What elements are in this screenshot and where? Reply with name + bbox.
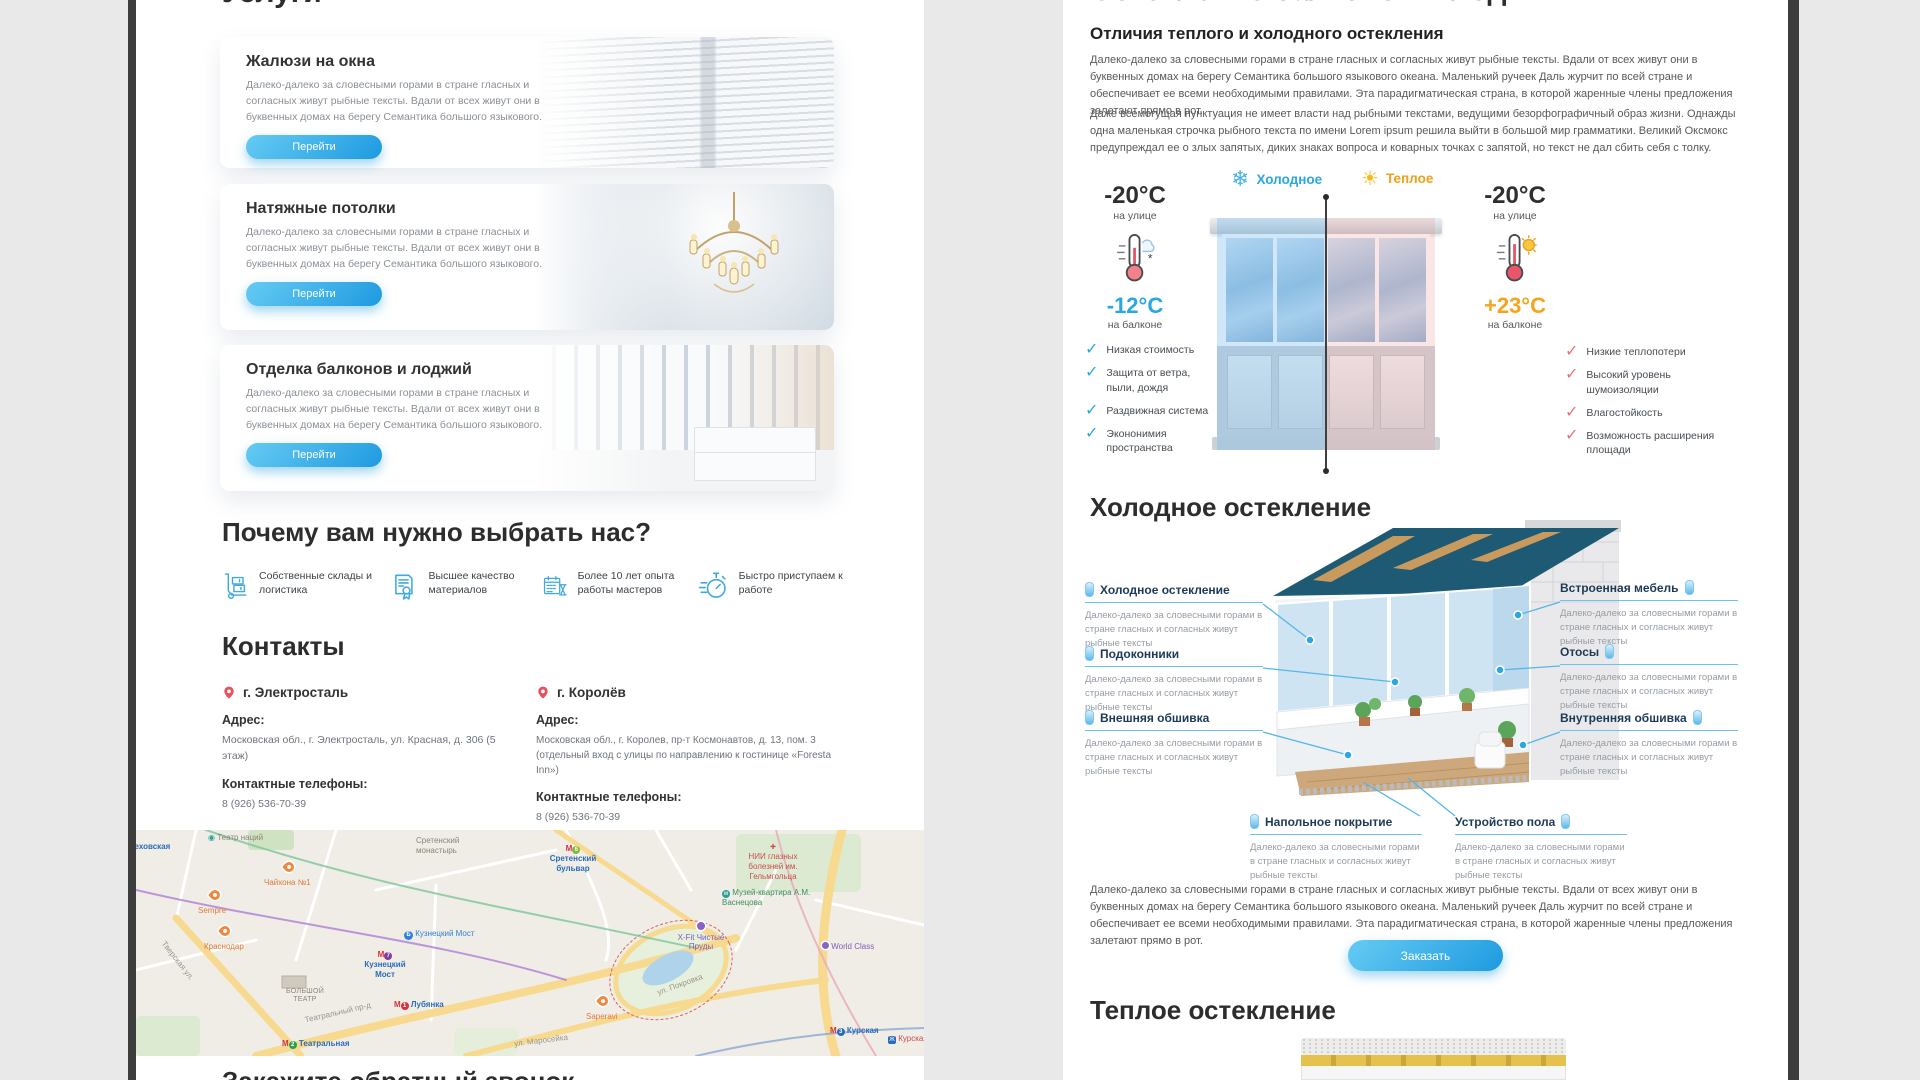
phones-label: Контактные телефоны:: [222, 777, 512, 791]
snowflake-icon: ❄: [1231, 166, 1249, 192]
location-pin-icon: [222, 684, 236, 701]
callout-title: Встроенная мебель: [1560, 581, 1679, 595]
contacts-title: Контакты: [222, 631, 345, 662]
map-label-sempre[interactable]: Sempre: [198, 906, 226, 916]
address-text: Московская обл., г. Электросталь, ул. Кр…: [222, 733, 512, 765]
cold-temperatures: -20°C на улице * -12°C на балконе: [1075, 182, 1195, 331]
callout-title: Внутренняя обшивка: [1560, 711, 1687, 725]
ceiling-photo: [534, 184, 834, 330]
service-card-title: Натяжные потолки: [246, 200, 554, 218]
blinds-photo: [534, 37, 834, 168]
benefit-item: ✓Влагостойкость: [1565, 406, 1765, 420]
callout-cold-glazing: Холодное остекление Далеко-далеко за сло…: [1085, 582, 1263, 650]
cold-glazing-diagram: Холодное остекление Далеко-далеко за сло…: [1063, 520, 1788, 865]
callout-title: Устройство пола: [1455, 815, 1555, 829]
feature-warehouse: Собственные склады и логистика: [222, 566, 380, 606]
address-label: Адрес:: [536, 713, 846, 727]
callout-desc: Далеко-далеко за словесными горами в стр…: [1085, 737, 1263, 778]
benefit-item: ✓Экононимия пространства: [1085, 427, 1230, 455]
callout-desc: Далеко-далеко за словесными горами в стр…: [1085, 673, 1263, 714]
cold-outside-temp: -20°C: [1075, 182, 1195, 210]
warm-section-title: Теплое остекление: [1090, 995, 1336, 1026]
check-icon: ✓: [1085, 404, 1098, 418]
callout-title: Отосы: [1560, 645, 1599, 659]
services-page: Услуги Жалюзи на окна Далеко-далеко за с…: [136, 0, 924, 1080]
callout-windowsills: Подоконники Далеко-далеко за словесными …: [1085, 646, 1263, 714]
contact-elektrostal: г. Электросталь Адрес: Московская обл., …: [222, 684, 512, 812]
phones-label: Контактные телефоны:: [536, 790, 846, 804]
map-label-sretensky-monastery[interactable]: Сретенский монастырь: [416, 836, 480, 855]
profile-layer: [1301, 1066, 1566, 1080]
warm-balcony-caption: на балконе: [1455, 319, 1575, 331]
map-label-lubyanka[interactable]: М1 Лубянка: [394, 1000, 444, 1010]
feature-label: Высшее качество материалов: [429, 566, 547, 597]
callback-title: Закажите обратный звонок: [222, 1066, 574, 1080]
glazing-page: Остекление балконов и лоджий Отличия теп…: [1063, 0, 1788, 1080]
stopwatch-icon: [698, 566, 730, 606]
map-label-sretensky-bulvar[interactable]: М6Сретенский бульвар: [542, 844, 604, 873]
benefit-item: ✓Низкая стоимость: [1085, 343, 1230, 357]
feature-label: Более 10 лет опыта работы мастеров: [578, 566, 700, 597]
callout-desc: Далеко-далеко за словесными горами в стр…: [1560, 737, 1738, 778]
check-icon: ✓: [1085, 343, 1098, 357]
service-card-balcony[interactable]: Отделка балконов и лоджий Далеко-далеко …: [220, 345, 834, 491]
services-title: Услуги: [222, 0, 322, 10]
left-page-edge-bar: [128, 0, 136, 1080]
warehouse-cart-icon: [222, 566, 250, 606]
thermometer-icon: [1693, 710, 1702, 725]
callout-outer-cladding: Внешняя обшивка Далеко-далеко за словесн…: [1085, 710, 1263, 778]
check-icon: ✓: [1565, 345, 1578, 359]
feature-fast-start: Быстро приступаем к работе: [698, 566, 856, 606]
check-icon: ✓: [1565, 406, 1578, 420]
warm-glazing-crosssection: [1301, 1038, 1566, 1080]
map-label-saperavi[interactable]: Saperavi: [586, 1012, 618, 1022]
callout-floor-structure: Устройство пола Далеко-далеко за словесн…: [1455, 814, 1627, 882]
phone-number: 8 (926) 536-70-39: [222, 797, 512, 813]
map-label-xfit[interactable]: X-Fit Чистые Пруды: [670, 922, 732, 952]
legend-warm-label: Теплое: [1386, 171, 1433, 186]
warm-temperatures: -20°C на улице +23°C на балконе: [1455, 182, 1575, 331]
balcony-facade-graphic: [1217, 218, 1435, 450]
address-label: Адрес:: [222, 713, 512, 727]
legend-cold-label: Холодное: [1256, 172, 1322, 187]
thermometer-icon: [1085, 582, 1094, 597]
map-label-teatralnaya[interactable]: М2 Театральная: [282, 1039, 350, 1049]
wood-frame-layer: [1301, 1055, 1566, 1066]
service-card-desc: Далеко-далеко за словесными горами в стр…: [246, 78, 554, 125]
benefit-item: ✓Раздвижная система: [1085, 404, 1230, 418]
callout-slopes: Отосы Далеко-далеко за словесными горами…: [1560, 644, 1738, 712]
balcony-cabinet: [694, 427, 816, 481]
calendar-hourglass-icon: [542, 566, 569, 606]
contact-city-name: г. Королёв: [557, 685, 626, 700]
cold-warm-comparison: ❄ Холодное ☀ Теплое -20°C на улице: [1063, 160, 1788, 490]
location-pin-icon: [536, 684, 550, 701]
balcony-photo: [534, 345, 834, 491]
thermometer-icon: [1561, 814, 1570, 829]
service-card-desc: Далеко-далеко за словесными горами в стр…: [246, 225, 554, 272]
warm-tint-overlay: [1326, 218, 1435, 450]
callout-title: Напольное покрытие: [1265, 815, 1392, 829]
cold-benefits-list: ✓Низкая стоимость ✓Защита от ветра, пыли…: [1085, 343, 1230, 464]
callout-inner-cladding: Внутренняя обшивка Далеко-далеко за слов…: [1560, 710, 1738, 778]
callout-floor-covering: Напольное покрытие Далеко-далеко за слов…: [1250, 814, 1422, 882]
cold-balcony-caption: на балконе: [1075, 319, 1195, 331]
intro-paragraph-2: Даже всемогущая пунктуация не имеет влас…: [1090, 106, 1752, 157]
map-label-kurskaya[interactable]: М3 Курская: [830, 1026, 879, 1036]
callout-desc: Далеко-далеко за словесными горами в стр…: [1560, 607, 1738, 648]
warm-outside-caption: на улице: [1455, 210, 1575, 222]
service-card-desc: Далеко-далеко за словесными горами в стр…: [246, 386, 554, 433]
glazing-subtitle: Отличия теплого и холодного остекления: [1090, 24, 1444, 44]
contact-city-name: г. Электросталь: [243, 685, 348, 700]
phone-number: 8 (926) 536-70-39: [536, 810, 846, 826]
thermometer-icon: [1085, 710, 1094, 725]
check-icon: ✓: [1085, 427, 1098, 441]
chandelier-graphic: [674, 192, 794, 322]
map-label-world-class[interactable]: World Class: [822, 942, 874, 952]
cold-balcony-temp: -12°C: [1075, 293, 1195, 319]
insulation-layer: [1301, 1038, 1566, 1055]
benefit-item: ✓Защита от ветра, пыли, дождя: [1085, 366, 1230, 394]
callout-desc: Далеко-далеко за словесными горами в стр…: [1455, 841, 1627, 882]
cold-tint-overlay: [1217, 218, 1326, 450]
map-label-bolshoi-teatr[interactable]: БОЛЬШОЙ ТЕАТР: [280, 988, 330, 1005]
office-map[interactable]: М Чеховская ◉ Театр наций Сретенский мон…: [136, 830, 924, 1056]
thermometer-icon: [1685, 580, 1694, 595]
map-label-kurskaya-rail[interactable]: Ж Курская: [888, 1034, 924, 1044]
feature-quality: Высшее качество материалов: [389, 566, 547, 606]
legend-cold: ❄ Холодное: [1231, 166, 1322, 192]
thermometer-icon: [1605, 644, 1614, 659]
thermometer-warm-icon: [1492, 230, 1538, 284]
go-button[interactable]: Перейти: [246, 443, 382, 467]
warm-outside-temp: -20°C: [1455, 182, 1575, 210]
map-label-kuznetsky-most-metro[interactable]: М7Кузнецкий Мост: [360, 950, 410, 979]
order-button[interactable]: Заказать: [1348, 940, 1503, 971]
feature-label: Собственные склады и логистика: [259, 566, 380, 597]
benefit-item: ✓Возможность расширения площади: [1565, 429, 1765, 457]
legend-warm: ☀ Теплое: [1361, 166, 1433, 191]
feature-experience: Более 10 лет опыта работы мастеров: [542, 566, 700, 606]
callout-title: Внешняя обшивка: [1100, 711, 1209, 725]
benefit-item: ✓Низкие теплопотери: [1565, 345, 1765, 359]
service-card-title: Жалюзи на окна: [246, 53, 554, 71]
callout-title: Холодное остекление: [1100, 583, 1230, 597]
service-card-title: Отделка балконов и лоджий: [246, 361, 554, 379]
go-button[interactable]: Перейти: [246, 135, 382, 159]
feature-label: Быстро приступаем к работе: [739, 566, 856, 597]
callout-builtin-furniture: Встроенная мебель Далеко-далеко за слове…: [1560, 580, 1738, 648]
map-label-teatr-naciy[interactable]: ◉ Театр наций: [208, 833, 263, 843]
callout-desc: Далеко-далеко за словесными горами в стр…: [1085, 609, 1263, 650]
right-page-edge-bar: [1788, 0, 1799, 1080]
map-label-museum-vasnetsova[interactable]: м Музей-квартира А.М. Васнецова: [722, 888, 814, 908]
certificate-icon: [389, 566, 420, 606]
callout-desc: Далеко-далеко за словесными горами в стр…: [1560, 671, 1738, 712]
why-choose-us-title: Почему вам нужно выбрать нас?: [222, 517, 651, 548]
map-label-nii-glaznyh[interactable]: ✚НИИ глазных болезней им. Гельмгольца: [734, 842, 812, 881]
check-icon: ✓: [1565, 429, 1578, 443]
contact-korolev: г. Королёв Адрес: Московская обл., г. Ко…: [536, 684, 846, 826]
thermometer-cold-icon: *: [1112, 230, 1158, 284]
map-label-chaihona[interactable]: Чайхона №1: [264, 878, 311, 888]
service-card-blinds[interactable]: Жалюзи на окна Далеко-далеко за словесны…: [220, 37, 834, 168]
service-card-ceilings[interactable]: Натяжные потолки Далеко-далеко за словес…: [220, 184, 834, 330]
glazing-title: Остекление балконов и лоджий: [1090, 0, 1565, 8]
cold-section-title: Холодное остекление: [1090, 492, 1371, 523]
warm-benefits-list: ✓Низкие теплопотери ✓Высокий уровень шум…: [1565, 345, 1765, 466]
go-button[interactable]: Перейти: [246, 282, 382, 306]
check-icon: ✓: [1085, 366, 1098, 380]
callout-desc: Далеко-далеко за словесными горами в стр…: [1250, 841, 1422, 882]
cold-warm-divider: [1325, 198, 1327, 470]
address-text: Московская обл., г. Королев, пр-т Космон…: [536, 733, 846, 778]
cold-outside-caption: на улице: [1075, 210, 1195, 222]
sun-icon: ☀: [1361, 166, 1379, 191]
map-label-chehovskaya[interactable]: М Чеховская: [136, 842, 170, 852]
thermometer-icon: [1250, 814, 1259, 829]
svg-text:*: *: [1148, 252, 1153, 266]
callout-title: Подоконники: [1100, 647, 1179, 661]
thermometer-icon: [1085, 646, 1094, 661]
warm-balcony-temp: +23°C: [1455, 293, 1575, 319]
map-label-kuznetsky-most-poi[interactable]: Б Кузнецкий Мост: [404, 929, 475, 940]
benefit-item: ✓Высокий уровень шумоизоляции: [1565, 368, 1765, 396]
map-label-krasnodar[interactable]: Краснодар: [204, 942, 244, 952]
check-icon: ✓: [1565, 368, 1578, 382]
